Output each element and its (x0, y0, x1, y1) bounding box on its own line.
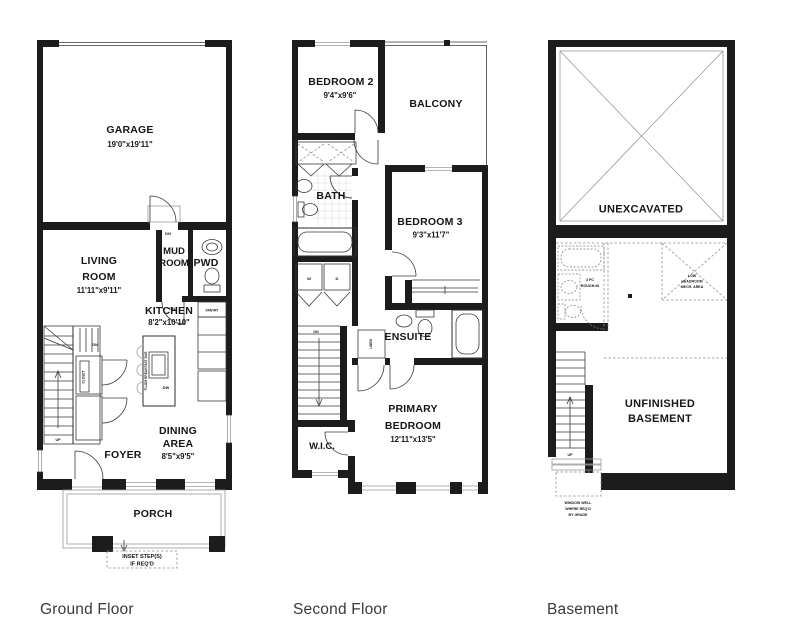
mud-room-label-1: MUD (163, 246, 185, 257)
foyer-entry-door (75, 451, 103, 479)
bath-label: BATH (316, 190, 345, 202)
low-headroom-label-3: MECH. AREA (681, 285, 704, 289)
kitchen-dims: 8'2"x10'10" (148, 318, 190, 327)
stairs-dn-label: DN (92, 343, 98, 347)
second-floor-plan: BEDROOM 2 9'4"x9'6" BALCONY BATH BEDROOM… (292, 40, 489, 494)
second-stairs (298, 326, 340, 414)
bedroom2-dims: 9'4"x9'6" (324, 91, 357, 100)
dn-garage-step-label: DN (165, 231, 171, 236)
garage-dims: 19'0"x19'11" (107, 140, 153, 149)
garage-door-icon (59, 43, 205, 46)
unexcavated-label: UNEXCAVATED (599, 204, 684, 216)
washer-label: W (307, 276, 311, 281)
bath-fixtures (294, 170, 356, 256)
garage-label: GARAGE (106, 124, 153, 136)
dining-label-1: DINING (159, 425, 197, 437)
living-room-dims: 11'11"x9'11" (77, 286, 122, 295)
kitchen-cabinets (198, 302, 226, 401)
basement-dashed-lines (556, 243, 727, 358)
balcony-label: BALCONY (409, 98, 462, 110)
window-well (552, 459, 601, 496)
living-room-label-2: ROOM (82, 271, 116, 283)
laundry-closet (296, 264, 350, 306)
low-headroom-label-2: HEADROOM (681, 280, 702, 284)
dishwasher-label: DW (163, 385, 170, 390)
second-floor-title: Second Floor (293, 601, 388, 619)
mud-room-label-2: ROOM (159, 258, 189, 269)
rough-in-label-2: ROUGH-IN (581, 284, 600, 288)
breakfast-bar-label: FLUSH BREAKFAST BAR (144, 351, 148, 390)
powder-room-label: PWD (193, 257, 218, 269)
bedroom2-label: BEDROOM 2 (308, 76, 373, 88)
inset-steps-note-1: INSET STEP(S) (122, 554, 162, 560)
foyer-label: FOYER (104, 449, 141, 461)
stairs-up-label: UP (56, 438, 62, 442)
unfinished-basement-label-1: UNFINISHED (625, 398, 695, 410)
bedroom2-closet (296, 142, 356, 176)
primary-bedroom-dims: 12'11"x13'5" (390, 435, 436, 444)
window-well-note-2: WHERE REQ'D (565, 507, 591, 511)
ground-floor-plan: GARAGE 19'0"x19'11" LIVING ROOM 11'11"x9… (37, 40, 233, 568)
dining-dims: 8'5"x9'5" (162, 452, 195, 461)
foyer-closets (76, 356, 127, 440)
basement-plan: UNEXCAVATED UNFINISHED BASEMENT 3 PC ROU… (548, 40, 735, 517)
ground-floor-title: Ground Floor (40, 601, 134, 619)
primary-bedroom-label-1: PRIMARY (388, 403, 437, 415)
closet-label: CLOSET (82, 370, 86, 383)
pantry-label: PANTRY (206, 309, 220, 313)
second-stairs-dn-label: DN (313, 330, 319, 334)
low-headroom-label-1: LOW (688, 274, 697, 278)
bedroom3-closet (412, 280, 480, 294)
wic-label: W.I.C. (309, 441, 335, 452)
unexcavated-area (560, 51, 723, 221)
inset-steps-note-2: IF REQ'D (130, 562, 154, 568)
bedroom3-dims: 9'3"x11'7" (413, 231, 450, 240)
unfinished-basement-label-2: BASEMENT (628, 413, 692, 425)
floorplan-drawing: GARAGE 19'0"x19'11" LIVING ROOM 11'11"x9… (0, 0, 789, 634)
kitchen-island (137, 336, 175, 406)
rough-in-label-1: 3 PC (586, 278, 594, 282)
window-well-note-1: WINDOW WELL (565, 501, 593, 505)
dryer-label: D (336, 276, 339, 281)
porch-label: PORCH (134, 508, 173, 520)
basement-title: Basement (547, 601, 618, 619)
dining-label-2: AREA (163, 438, 194, 450)
basement-stairs-up-label: UP (568, 453, 574, 457)
primary-bedroom-label-2: BEDROOM (385, 420, 441, 432)
ensuite-label: ENSUITE (385, 331, 432, 343)
basement-stairs (556, 352, 585, 448)
dn-kitchen-step-label: DN (169, 306, 175, 311)
bedroom3-label: BEDROOM 3 (397, 216, 462, 228)
floorplan-sheet: GARAGE 19'0"x19'11" LIVING ROOM 11'11"x9… (0, 0, 789, 634)
window-well-note-3: BY GRADE (569, 513, 589, 517)
linen-label: LINEN (369, 339, 373, 349)
living-room-label-1: LIVING (81, 255, 117, 267)
